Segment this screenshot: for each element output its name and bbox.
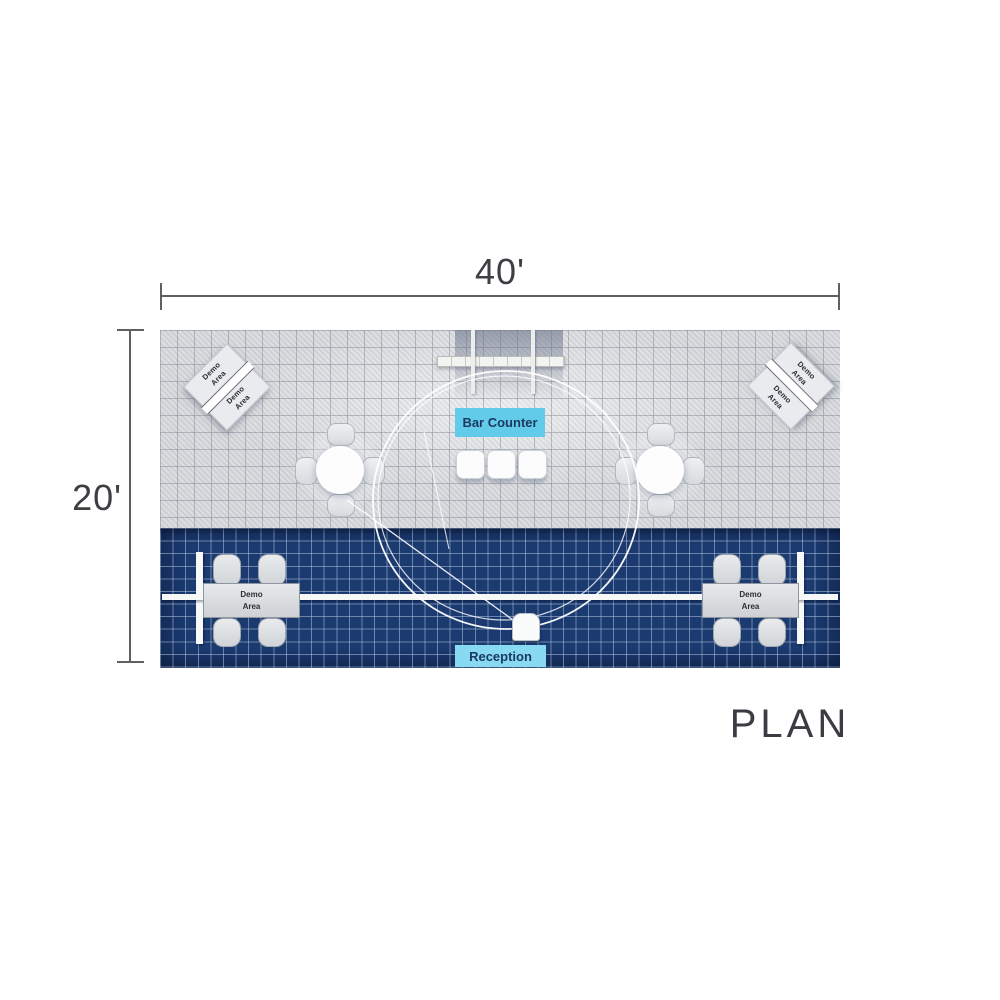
round-table-right	[610, 420, 710, 520]
round-table-top	[316, 446, 364, 494]
bar-stool	[518, 450, 547, 479]
demo-word: Demo	[739, 589, 761, 600]
bar-post-right	[531, 330, 535, 394]
height-dimension-cap-bottom	[117, 661, 144, 663]
chair	[213, 618, 241, 647]
demo-word: Demo	[240, 589, 262, 600]
reception-label: Reception	[455, 645, 546, 667]
chair	[295, 457, 318, 485]
chair	[682, 457, 705, 485]
width-dimension-cap-right	[838, 283, 840, 310]
chair	[258, 618, 286, 647]
chair	[647, 494, 675, 517]
chair	[758, 554, 786, 586]
chair	[713, 554, 741, 586]
demo-table-bottom-left: Demo Area	[203, 583, 300, 618]
plan-caption: PLAN	[690, 702, 890, 747]
height-dimension-label: 20'	[52, 477, 122, 519]
bar-shelf	[437, 356, 565, 367]
bar-stool	[487, 450, 516, 479]
chair	[213, 554, 241, 586]
bar-counter-label: Bar Counter	[455, 408, 545, 437]
chair	[362, 457, 385, 485]
demo-table-bottom-right: Demo Area	[702, 583, 799, 618]
bar-post-left	[471, 330, 475, 394]
area-word: Area	[243, 601, 261, 612]
chair	[615, 457, 638, 485]
chair	[647, 423, 675, 446]
height-dimension-line	[129, 330, 131, 663]
booth-plan-figure: 40' 20' Demo Area Demo	[0, 0, 1000, 1000]
width-dimension-line	[161, 295, 839, 297]
height-dimension-cap-top	[117, 329, 144, 331]
booth-plan: Demo Area Demo Area Demo Area	[160, 330, 840, 668]
area-word: Area	[742, 601, 760, 612]
chair	[758, 618, 786, 647]
chair	[327, 423, 355, 446]
round-table-left	[290, 420, 390, 520]
width-dimension-cap-left	[160, 283, 162, 310]
round-table-top	[636, 446, 684, 494]
chair	[327, 494, 355, 517]
bar-stool	[456, 450, 485, 479]
chair	[713, 618, 741, 647]
chair	[258, 554, 286, 586]
reception-chair	[512, 613, 540, 641]
width-dimension-label: 40'	[400, 251, 600, 293]
carpet-edge-shadow	[160, 528, 840, 535]
